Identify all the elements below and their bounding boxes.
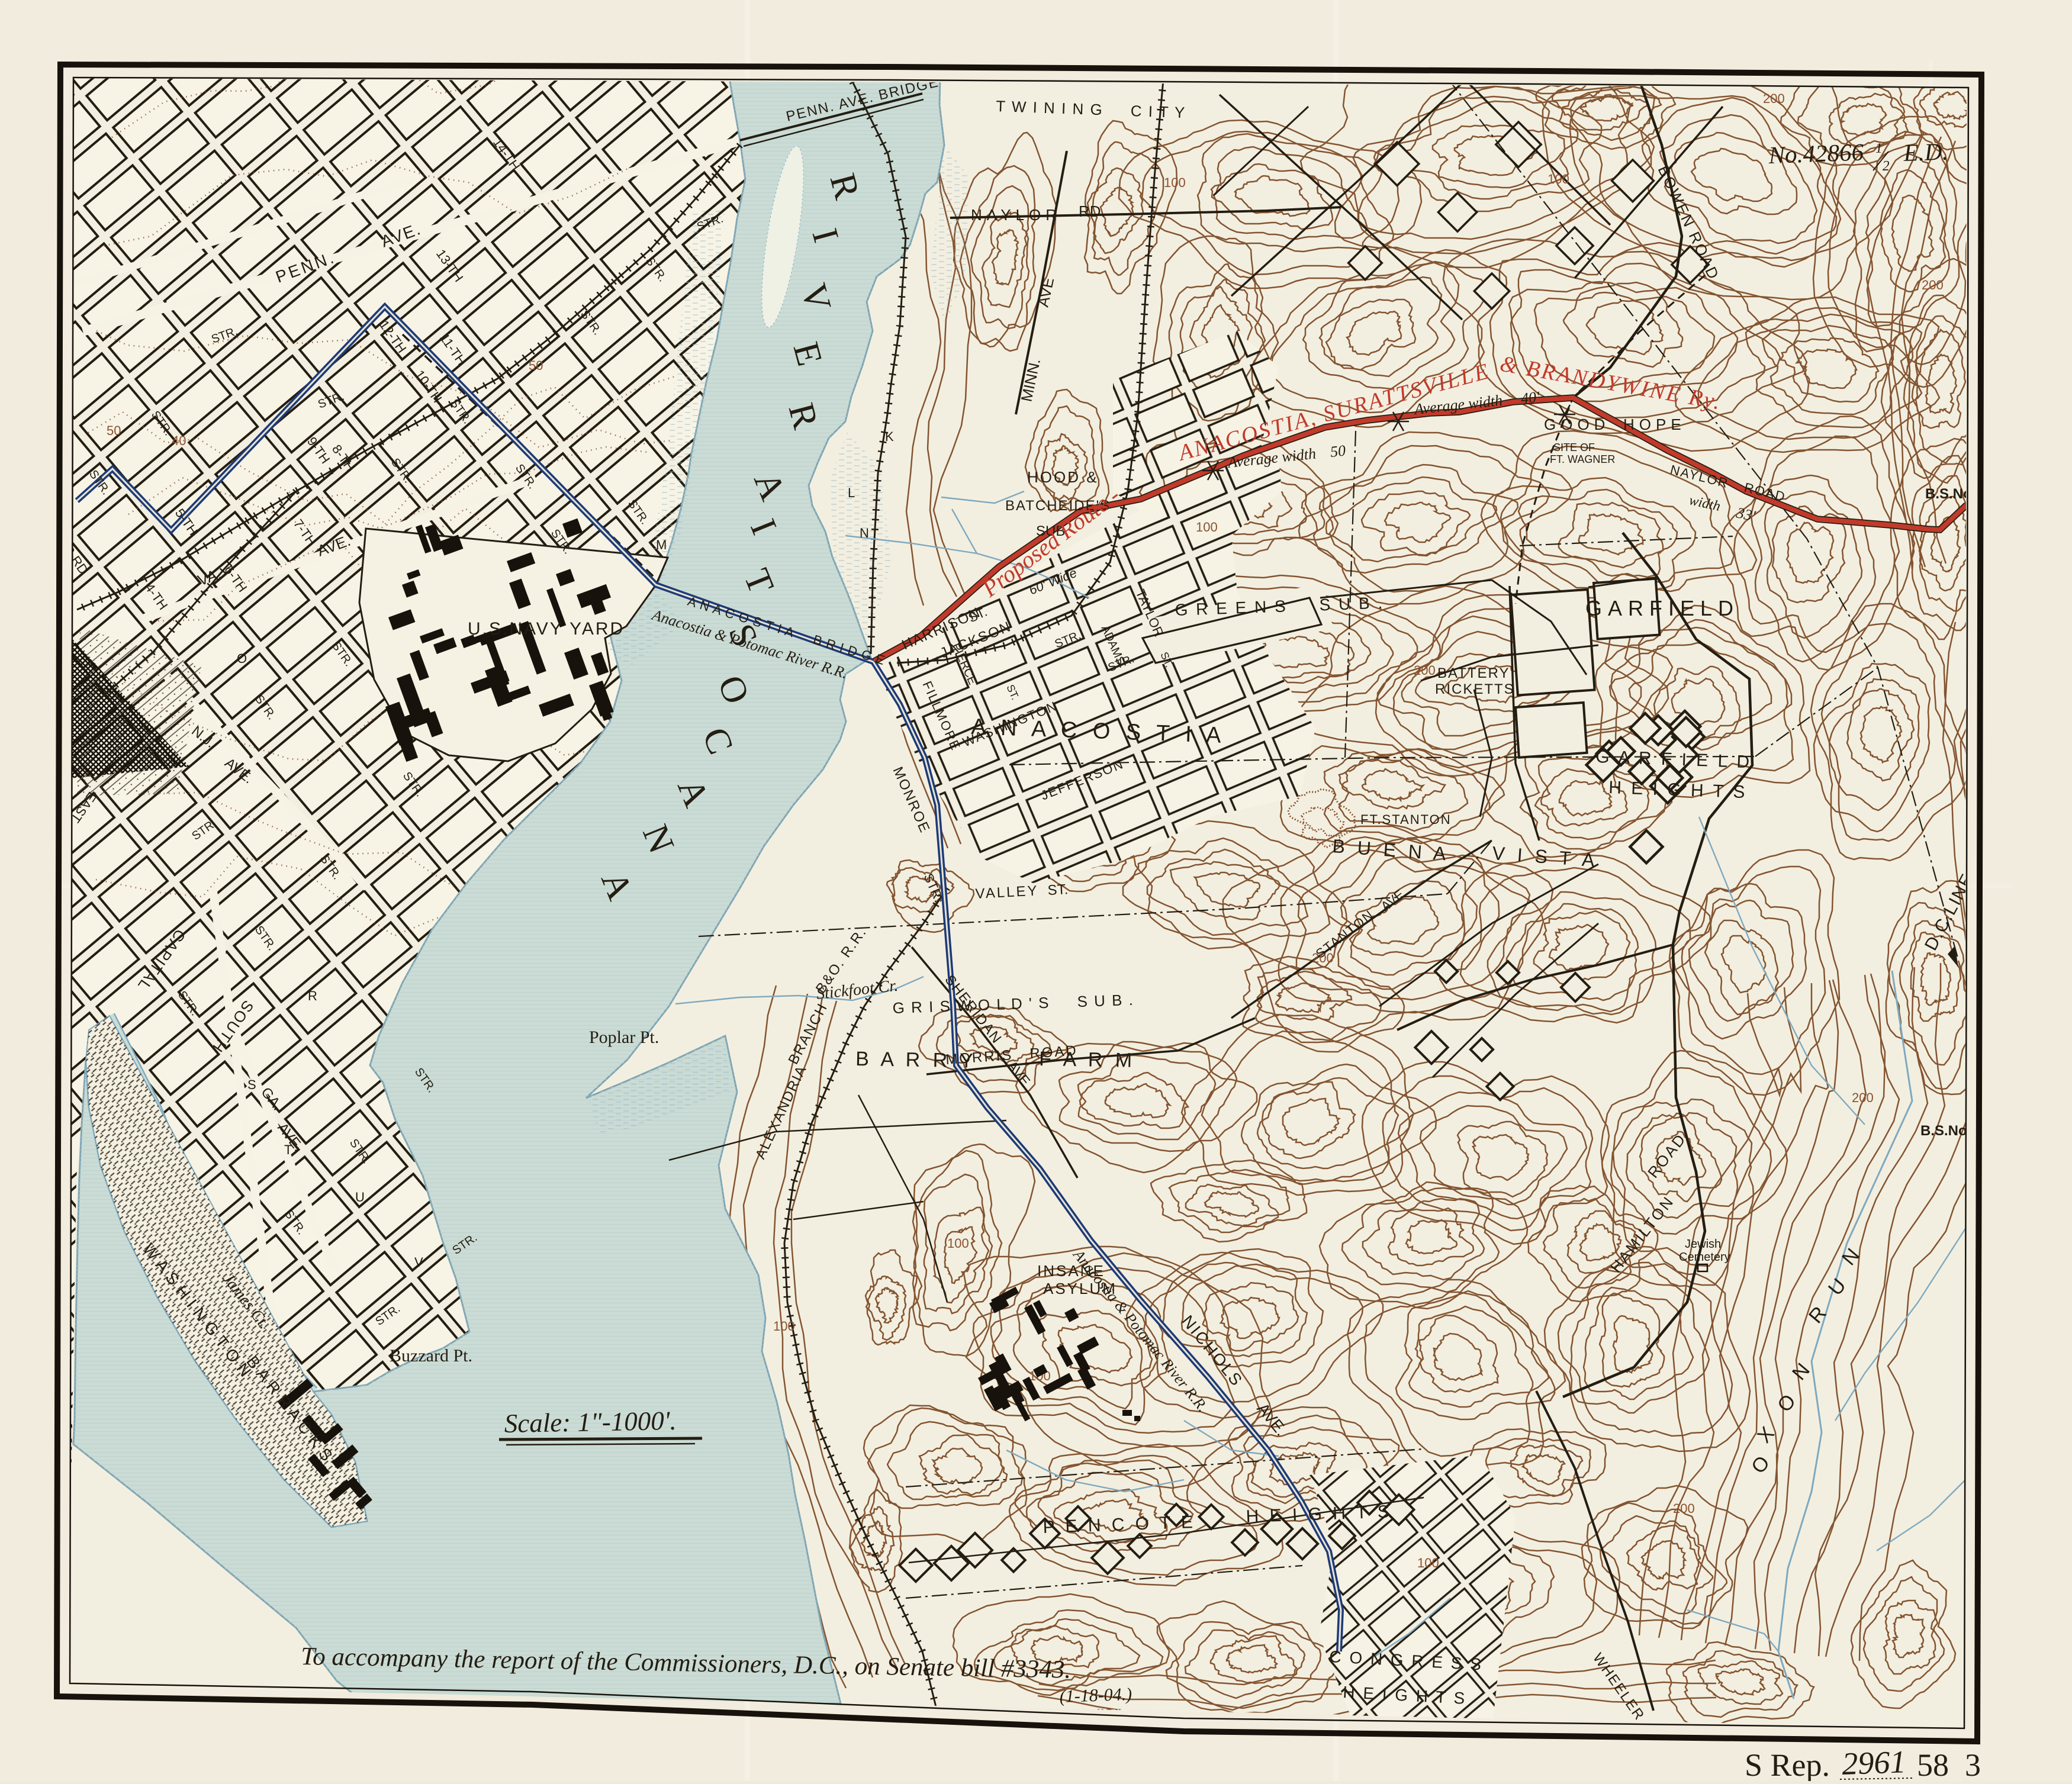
svg-text:BATTERY: BATTERY <box>1437 665 1510 681</box>
svg-text:40: 40 <box>172 433 186 448</box>
svg-text:50: 50 <box>529 358 543 373</box>
svg-text:No.42866: No.42866 <box>1768 138 1865 169</box>
svg-text:ROAD: ROAD <box>1029 1042 1079 1062</box>
svg-text:N: N <box>860 526 869 540</box>
svg-text:58 3: 58 3 <box>1917 1747 1981 1781</box>
svg-text:E.D.: E.D. <box>1903 137 1949 166</box>
svg-text:FT.STANTON: FT.STANTON <box>1360 812 1452 827</box>
svg-text:2: 2 <box>1882 159 1890 174</box>
svg-text:50: 50 <box>1330 442 1347 461</box>
svg-text:Buzzard Pt.: Buzzard Pt. <box>390 1346 472 1366</box>
svg-text:S Rep.: S Rep. <box>1745 1747 1830 1781</box>
svg-text:100: 100 <box>1164 175 1186 190</box>
svg-text:M: M <box>656 537 667 552</box>
svg-text:RD.: RD. <box>1079 202 1105 220</box>
svg-text:200: 200 <box>1312 951 1334 965</box>
svg-text:200: 200 <box>1763 91 1785 106</box>
svg-text:U: U <box>355 1190 365 1205</box>
svg-text:1: 1 <box>1875 141 1883 156</box>
svg-text:200: 200 <box>1673 1501 1695 1516</box>
svg-text:Cemetery: Cemetery <box>1679 1251 1730 1264</box>
svg-text:Scale: 1"-1000'.: Scale: 1"-1000'. <box>504 1406 677 1438</box>
svg-text:V: V <box>414 1255 423 1270</box>
svg-text:200: 200 <box>1414 663 1436 678</box>
svg-text:100: 100 <box>947 1236 969 1251</box>
svg-text:200: 200 <box>1852 1090 1874 1105</box>
svg-text:2961: 2961 <box>1841 1744 1906 1781</box>
svg-text:U.S.NAVY YARD: U.S.NAVY YARD <box>468 619 625 639</box>
svg-text:100: 100 <box>1417 1556 1439 1570</box>
svg-text:FT. WAGNER: FT. WAGNER <box>1550 453 1615 465</box>
svg-text:40': 40' <box>1520 388 1541 407</box>
svg-text:NAYLOR: NAYLOR <box>971 206 1061 224</box>
svg-text:VALLEY: VALLEY <box>975 883 1039 902</box>
svg-text:SITE OF: SITE OF <box>1553 442 1595 453</box>
svg-text:HOOD &: HOOD & <box>1027 468 1099 486</box>
svg-text:(1-18-04.): (1-18-04.) <box>1059 1685 1132 1706</box>
svg-text:L: L <box>848 485 855 500</box>
svg-text:S: S <box>247 1077 256 1092</box>
svg-text:100: 100 <box>1547 172 1569 186</box>
svg-text:100: 100 <box>1196 520 1218 534</box>
svg-text:200: 200 <box>1922 278 1944 292</box>
svg-text:T: T <box>284 1142 292 1157</box>
svg-text:RICKETTS: RICKETTS <box>1435 681 1515 697</box>
svg-text:R: R <box>308 988 317 1003</box>
svg-text:GOOD: GOOD <box>1544 416 1610 433</box>
svg-text:K: K <box>885 429 894 444</box>
svg-text:100: 100 <box>773 1319 795 1334</box>
svg-text:HOPE: HOPE <box>1623 416 1686 433</box>
svg-text:ST.: ST. <box>1047 881 1069 899</box>
svg-text:Poplar Pt.: Poplar Pt. <box>589 1028 659 1047</box>
svg-text:50: 50 <box>107 423 121 438</box>
svg-text:GARFIELD: GARFIELD <box>1585 596 1739 620</box>
svg-text:O: O <box>237 651 247 666</box>
svg-text:Jewish: Jewish <box>1685 1238 1721 1251</box>
